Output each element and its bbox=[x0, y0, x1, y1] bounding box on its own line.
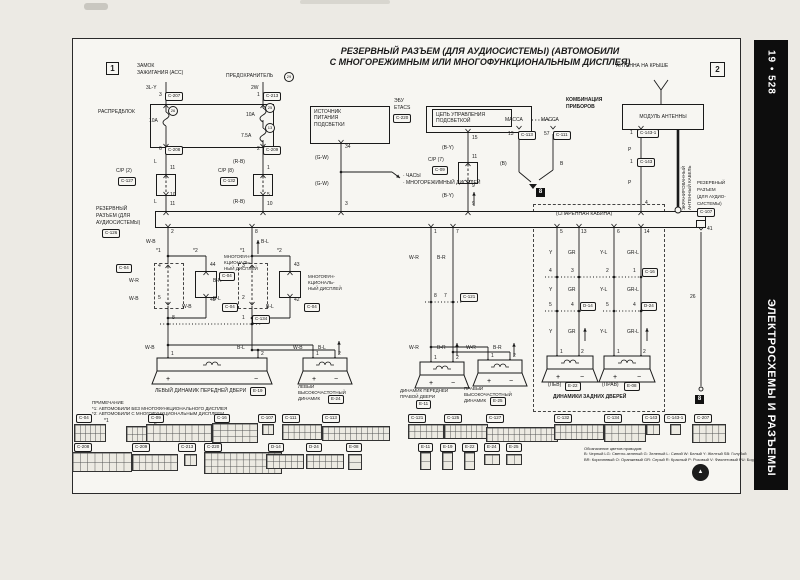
wire-label: 4 bbox=[633, 303, 636, 309]
connector-ref-label: E-24 bbox=[328, 395, 344, 404]
wire-label: 41 bbox=[707, 227, 713, 233]
wire-label: МНОГОФУН- bbox=[308, 274, 335, 279]
component-box: ЦЕПЬ УПРАВЛЕНИЯПОДСВЕТКОЙ bbox=[432, 109, 512, 127]
wire-label: 2 bbox=[338, 352, 341, 358]
connector-ref-label: E-22 bbox=[462, 443, 478, 452]
wire-label: Y bbox=[549, 330, 552, 336]
wire-label: 6 bbox=[617, 230, 620, 236]
component-box-label: ПОДСВЕТКОЙ bbox=[436, 118, 508, 124]
wire-label: 10 bbox=[170, 193, 176, 199]
connector-pinout-view bbox=[282, 424, 322, 440]
wire-label: 3L-Y bbox=[146, 86, 157, 92]
scan-smudge bbox=[84, 3, 108, 10]
wire-label: РАЗЪЕМ bbox=[697, 187, 716, 192]
wire-label: ПРАВОЙ ДВЕРИ bbox=[400, 394, 435, 399]
wire-label: (B-Y) bbox=[442, 146, 454, 152]
scanned-wiring-diagram-page: РЕЗЕРВНЫЙ РАЗЪЕМ (ДЛЯ АУДИОСИСТЕМЫ) (АВТ… bbox=[0, 0, 800, 580]
connector-ref-label: C-134 bbox=[604, 414, 622, 423]
wire-label: P bbox=[628, 181, 631, 187]
wire-label: РАЗЪЕМ (ДЛЯ bbox=[96, 214, 130, 220]
connector-ref-label: C-16 bbox=[642, 268, 658, 277]
wire-label: 42 bbox=[294, 298, 300, 304]
connector-pinout-view bbox=[486, 427, 558, 442]
connector-ref-label: E-11 bbox=[416, 400, 431, 409]
wire-label: Y-L bbox=[600, 288, 607, 294]
wire-label: GR-L bbox=[627, 251, 639, 257]
wire-label: 5 bbox=[267, 193, 270, 199]
wire-label: ПРИБОРОВ bbox=[566, 105, 595, 111]
connector-ref-label: C-107 bbox=[258, 414, 276, 423]
wire-label: L bbox=[154, 200, 157, 206]
wire-label: W-R bbox=[409, 256, 419, 262]
wire-label: ЛЕВЫЙ ДИНАМИК ПЕРЕДНЕЙ ДВЕРИ bbox=[155, 389, 246, 395]
wire-label: КЦИОНАЛЬ- bbox=[308, 280, 334, 285]
fuse-number-label: 13 bbox=[265, 123, 275, 133]
wire-label: W-B bbox=[182, 305, 192, 311]
wire-label: 3 bbox=[159, 93, 162, 99]
wire-label: Y bbox=[549, 288, 552, 294]
wire-label: НЫЙ ДИСПЛЕЙ bbox=[308, 286, 342, 291]
wire-label: 10A bbox=[149, 119, 158, 125]
wire-label: 8 bbox=[172, 316, 175, 322]
component-box bbox=[696, 220, 706, 228]
connector-pinout-view bbox=[506, 454, 522, 465]
wire-label: W-R bbox=[129, 279, 139, 285]
wire-label: ДИНАМИК bbox=[464, 398, 486, 403]
wire-label: 10 bbox=[267, 202, 273, 208]
component-box-label: ПОДСВЕТКИ bbox=[314, 122, 386, 128]
wire-label: *2 bbox=[277, 249, 282, 255]
wire-label: B bbox=[560, 162, 563, 168]
wire-label: (СПАРЕННАЯ КАБИНА) bbox=[554, 212, 614, 218]
component-box bbox=[155, 211, 706, 228]
connector-pinout-view bbox=[604, 424, 646, 442]
component-box-label: 1 bbox=[110, 64, 114, 74]
wire-label: 11 bbox=[170, 166, 175, 172]
wire-label: 8 bbox=[434, 294, 437, 300]
wire-label: GR-L bbox=[627, 330, 639, 336]
wire-label: B-L bbox=[318, 346, 326, 352]
connector-ref-label: C-132 bbox=[220, 177, 238, 186]
wire-label: 2 bbox=[513, 354, 516, 360]
page-number: 19 • 528 bbox=[766, 50, 777, 95]
connector-pinout-view bbox=[442, 452, 453, 470]
connector-pinout-view bbox=[348, 454, 362, 470]
connector-pinout-view bbox=[484, 454, 500, 465]
wire-label: 11 bbox=[472, 155, 477, 161]
wire-label: B-L bbox=[261, 240, 269, 246]
wire-label: 5 bbox=[158, 296, 161, 302]
wire-label: (ДЛЯ АУДИО- bbox=[697, 194, 726, 199]
connector-pinout-view bbox=[670, 424, 681, 435]
component-box bbox=[253, 174, 273, 196]
wire-label: 5 bbox=[549, 303, 552, 309]
wire-label: L bbox=[154, 160, 157, 166]
wire-label: 2 bbox=[456, 356, 459, 362]
wire-label: GR bbox=[568, 288, 576, 294]
connector-ref-label: E-25 bbox=[506, 443, 522, 452]
connector-ref-label: E-11 bbox=[418, 443, 433, 452]
component-box: 1 bbox=[106, 62, 119, 75]
connector-ref-label: C-127 bbox=[486, 414, 504, 423]
connector-ref-label: C-207 bbox=[694, 414, 712, 423]
wire-label: (ПРАВ) bbox=[602, 383, 619, 389]
wire-label: W-B bbox=[293, 346, 303, 352]
connector-ref-label: C-107 bbox=[697, 208, 715, 217]
connector-pinout-view bbox=[646, 424, 660, 435]
fuse-number-label: 26 bbox=[168, 106, 178, 116]
wire-label: 1 bbox=[171, 352, 174, 358]
wire-label: 1 bbox=[491, 354, 494, 360]
connector-ref-label: D-14 bbox=[580, 302, 596, 311]
wire-label: B-R bbox=[437, 346, 446, 352]
connector-ref-label: E-19 bbox=[250, 387, 266, 396]
connector-ref-label: C-143 bbox=[637, 158, 655, 167]
wire-label: 13 bbox=[581, 230, 587, 236]
connector-pinout-view bbox=[266, 454, 304, 469]
component-box: 2 bbox=[710, 62, 725, 77]
note-line: *2: АВТОМОБИЛИ С МНОГОФУНКЦИОНАЛЬНЫМ ДИС… bbox=[92, 411, 227, 417]
wire-label: (B) bbox=[500, 162, 507, 168]
wire-label: (G-W) bbox=[315, 156, 329, 162]
wire-label: 5 bbox=[560, 230, 563, 236]
wire-color-legend: Обозначение цветов проводов: B: Черный L… bbox=[584, 446, 744, 462]
connector-ref-label: C-111 bbox=[553, 131, 571, 140]
wire-label: 1 bbox=[257, 93, 260, 99]
wire-label: ЗАМОК bbox=[137, 64, 154, 70]
wire-label: *2 bbox=[193, 249, 198, 255]
connector-ref-label: E-08 bbox=[346, 443, 362, 452]
connector-pinout-view bbox=[692, 424, 726, 443]
wire-label: 34 bbox=[345, 145, 351, 151]
wire-label: 6 bbox=[159, 147, 162, 153]
wire-label: НЫЙ ДИСПЛЕЙ bbox=[224, 266, 258, 271]
wire-label: (ЛЕВ) bbox=[548, 383, 561, 389]
wire-label: АУДИОСИСТЕМЫ) bbox=[96, 221, 140, 227]
ground-ref-badge: 8 bbox=[695, 395, 704, 404]
wire-label: (R-B) bbox=[233, 160, 245, 166]
wire-label: 4 bbox=[571, 303, 574, 309]
wire-label: (B-Y) bbox=[442, 194, 454, 200]
connector-ref-label: C-143-1 bbox=[637, 129, 659, 138]
connector-ref-label: C-04 bbox=[76, 414, 92, 423]
dashed-region bbox=[154, 263, 184, 309]
wire-label: ЛЕВЫЙ bbox=[298, 384, 314, 389]
wire-label: W-B bbox=[146, 240, 156, 246]
wire-label: МАССА bbox=[541, 118, 559, 124]
wire-label: (R-B) bbox=[233, 200, 245, 206]
wire-label: 2 bbox=[643, 350, 646, 356]
connector-ref-label: E-22 bbox=[565, 382, 581, 391]
connector-ref-label: C-209 bbox=[132, 443, 150, 452]
connector-ref-label: C-127 bbox=[118, 177, 136, 186]
wire-label: 15 bbox=[472, 136, 478, 142]
wire-label: 1 bbox=[434, 230, 437, 236]
connector-pinout-view bbox=[132, 454, 178, 471]
fuse-number-label: 25 bbox=[265, 103, 275, 113]
connector-ref-label: C-125 bbox=[444, 414, 462, 423]
wire-label: 2 bbox=[606, 269, 609, 275]
wire-label: 44 bbox=[210, 263, 216, 269]
wire-label: B-L bbox=[213, 297, 221, 303]
page-edge-tab: 19 • 528 ЭЛЕКТРОСХЕМЫ И РАЗЪЕМЫ bbox=[754, 40, 788, 490]
wire-label: ЗАЖИГАНИЯ (АСС) bbox=[137, 71, 183, 77]
connector-ref-label: C-121 bbox=[460, 293, 478, 302]
wire-label: Y bbox=[549, 251, 552, 257]
wire-label: ДИНАМИК ПЕРЕДНЕЙ bbox=[400, 388, 448, 393]
chapter-title: ЭЛЕКТРОСХЕМЫ И РАЗЪЕМЫ bbox=[765, 299, 777, 476]
legend-line: BR: Коричневый O: Оранжевый GR: Серый R:… bbox=[584, 457, 744, 462]
component-box-label: 2 bbox=[715, 65, 719, 75]
wire-label: РЕЗЕРВНЫЙ bbox=[697, 180, 725, 185]
wire-label: B-L bbox=[266, 305, 274, 311]
wire-label: 43 bbox=[294, 263, 300, 269]
wire-label: *1 bbox=[240, 249, 245, 255]
wire-label: B-R bbox=[437, 256, 446, 262]
connector-pinout-view bbox=[464, 452, 475, 470]
wire-label: 1 bbox=[617, 350, 620, 356]
wire-label: · ЧАСЫ bbox=[403, 174, 421, 180]
connector-ref-label: C-113 bbox=[322, 414, 340, 423]
connector-ref-label: C-111 bbox=[282, 414, 300, 423]
wire-label: КОМБИНАЦИЯ bbox=[566, 98, 602, 104]
wire-label: 13 bbox=[508, 132, 514, 138]
wire-label: Y-L bbox=[600, 251, 607, 257]
scan-smudge bbox=[300, 0, 390, 4]
diagram-title-line1: РЕЗЕРВНЫЙ РАЗЪЕМ (ДЛЯ АУДИОСИСТЕМЫ) (АВТ… bbox=[280, 46, 680, 57]
component-box-label: МОДУЛЬ АНТЕННЫ bbox=[639, 114, 686, 120]
wire-label: 3 bbox=[242, 264, 245, 270]
ground-ref-badge: 8 bbox=[536, 188, 545, 197]
connector-ref-label: C-213 bbox=[178, 443, 196, 452]
connector-ref-label: C-207 bbox=[165, 92, 183, 101]
connector-pinout-view bbox=[184, 454, 197, 466]
wire-label: P bbox=[628, 148, 631, 154]
wire-label: 8 bbox=[255, 230, 258, 236]
connector-ref-label: C-134 bbox=[252, 315, 270, 324]
antenna-cable-label: АНТЕННЫЙ КАБЕЛЬ bbox=[687, 136, 692, 210]
wire-label: (G-W) bbox=[315, 182, 329, 188]
wire-label: 3 bbox=[345, 202, 348, 208]
connector-pinout-view bbox=[212, 423, 258, 443]
wire-label: W-B bbox=[129, 297, 139, 303]
connector-ref-label: C-04 bbox=[222, 303, 238, 312]
wire-label: 2 bbox=[261, 352, 264, 358]
wire-label: 2 bbox=[257, 147, 260, 153]
wire-label: GR bbox=[568, 330, 576, 336]
wire-label: 26 bbox=[690, 295, 696, 301]
connector-ref-label: C-209 bbox=[263, 146, 281, 155]
connector-pinout-view bbox=[408, 424, 444, 439]
wire-label: 7 bbox=[444, 294, 447, 300]
connector-ref-label: E-19 bbox=[440, 443, 456, 452]
connector-ref-label: C-113 bbox=[518, 131, 536, 140]
wire-label: C/P (8) bbox=[218, 169, 234, 175]
wire-label: 2 bbox=[581, 350, 584, 356]
wire-label: 2W bbox=[251, 86, 259, 92]
connector-ref-label: C-126 bbox=[102, 229, 120, 238]
connector-ref-label: D-24 bbox=[306, 443, 322, 452]
connector-ref-label: C-09 bbox=[432, 166, 448, 175]
connector-ref-label: C-132 bbox=[554, 414, 572, 423]
connector-ref-label: C-220 bbox=[204, 443, 222, 452]
wire-label: 1 bbox=[316, 352, 319, 358]
wire-label: КЦИОНАЛЬ- bbox=[224, 260, 250, 265]
legend-line: B: Черный LG: Светло-зеленый G: Зеленый … bbox=[584, 451, 744, 456]
wire-label: 1 bbox=[630, 160, 633, 166]
wire-label: 4 bbox=[645, 201, 648, 207]
wire-label: 7.5A bbox=[241, 134, 251, 140]
wire-label: 1 bbox=[434, 356, 437, 362]
connector-pinout-view bbox=[146, 424, 212, 442]
wire-label: ETACS bbox=[394, 106, 410, 112]
component-box: МОДУЛЬ АНТЕННЫ bbox=[622, 104, 704, 130]
wire-label: ПРАВЫЙ bbox=[464, 386, 483, 391]
connector-ref-label: C-208 bbox=[74, 443, 92, 452]
connector-pinout-view bbox=[420, 452, 431, 470]
wire-label: W-B bbox=[145, 346, 155, 352]
wire-label: W-R bbox=[466, 346, 476, 352]
wire-label: 1 bbox=[633, 269, 636, 275]
connector-ref-label: C-121 bbox=[408, 414, 426, 423]
connector-ref-label: D-24 bbox=[641, 302, 657, 311]
wire-label: МНОГОФУН- bbox=[224, 254, 251, 259]
connector-pinout-view bbox=[444, 424, 488, 439]
wire-label: 2 bbox=[242, 296, 245, 302]
connector-ref-label: C-143-1 bbox=[664, 414, 686, 423]
wire-label: B-L bbox=[237, 346, 245, 352]
note-block: ПРИМЕЧАНИЕ *1: АВТОМОБИЛИ БЕЗ МНОГОФУНКЦ… bbox=[92, 400, 227, 417]
connector-ref-label: C-220 bbox=[393, 114, 411, 123]
connector-ref-label: C-213 bbox=[263, 92, 281, 101]
wire-label: C/P (7) bbox=[428, 158, 444, 164]
connector-ref-label: E-25 bbox=[490, 397, 506, 406]
wire-label: 9 bbox=[472, 202, 475, 208]
connector-ref-label: D-14 bbox=[268, 443, 284, 452]
connector-pinout-view bbox=[72, 452, 132, 472]
wire-label: МАССА bbox=[505, 118, 523, 124]
wire-label: 9 bbox=[472, 184, 475, 190]
wire-label: 14 bbox=[644, 230, 650, 236]
connector-ref-label: E-08 bbox=[624, 382, 640, 391]
wire-label: СИСТЕМЫ) bbox=[697, 201, 722, 206]
connector-pinout-view bbox=[554, 424, 604, 440]
wire-label: C/P (2) bbox=[116, 169, 132, 175]
wire-label: ДИНАМИК bbox=[298, 396, 320, 401]
wire-label: РЕЗЕРВНЫЙ bbox=[96, 207, 127, 213]
wire-label: 57 bbox=[544, 132, 550, 138]
connector-pinout-view bbox=[74, 424, 106, 442]
connector-ref-label: C-143 bbox=[642, 414, 660, 423]
connector-pinout-view bbox=[322, 426, 390, 441]
wire-label: 2 bbox=[171, 230, 174, 236]
wire-label: Y-L bbox=[600, 330, 607, 336]
connector-pinout-view bbox=[306, 454, 344, 469]
wire-label: W-R bbox=[409, 346, 419, 352]
wire-label: 4 bbox=[158, 264, 161, 270]
connector-ref-label: C-04 bbox=[219, 272, 235, 281]
wire-label: РАСПРЕДБЛОК bbox=[98, 110, 135, 116]
wire-label: *1 bbox=[156, 249, 161, 255]
wire-label: АНТЕННА НА КРЫШЕ bbox=[616, 64, 668, 70]
connector-ref-label: C-04 bbox=[304, 303, 320, 312]
antenna-cable-label: ЭКРАНИРОВАННЫЙ bbox=[681, 132, 686, 210]
wire-label: 5 bbox=[606, 303, 609, 309]
wire-label: B-R bbox=[493, 346, 502, 352]
component-box: ИСТОЧНИКПИТАНИЯПОДСВЕТКИ bbox=[310, 106, 390, 144]
wire-label: ЭБУ bbox=[394, 99, 404, 105]
wire-label: 1 bbox=[560, 350, 563, 356]
wire-label: 7 bbox=[456, 230, 459, 236]
wire-label: 1 bbox=[242, 316, 245, 322]
connector-ref-label: C-208 bbox=[165, 146, 183, 155]
wire-label: 3 bbox=[571, 269, 574, 275]
connector-ref-label: E-24 bbox=[484, 443, 500, 452]
wire-label: 1 bbox=[630, 131, 633, 137]
wire-label: GR-L bbox=[627, 288, 639, 294]
wire-label: 11 bbox=[170, 202, 175, 208]
wire-label: 1 bbox=[267, 166, 270, 172]
fuse-number-label: 29 bbox=[284, 72, 294, 82]
wire-label: 4 bbox=[549, 269, 552, 275]
wire-label: ДИНАМИКИ ЗАДНИХ ДВЕРЕЙ bbox=[553, 395, 626, 401]
connector-ref-label: C-04 bbox=[116, 264, 132, 273]
wire-label: · МНОГОРЕЖИМНЫЙ ДИСПЛЕЙ bbox=[403, 181, 481, 187]
connector-pinout-view bbox=[262, 424, 274, 435]
wire-label: GR bbox=[568, 251, 576, 257]
publisher-logo-icon: ▲ bbox=[692, 464, 709, 481]
wire-label: 10A bbox=[246, 113, 255, 119]
component-box bbox=[279, 271, 301, 298]
wire-label: ПРЕДОХРАНИТЕЛЬ bbox=[226, 74, 273, 80]
